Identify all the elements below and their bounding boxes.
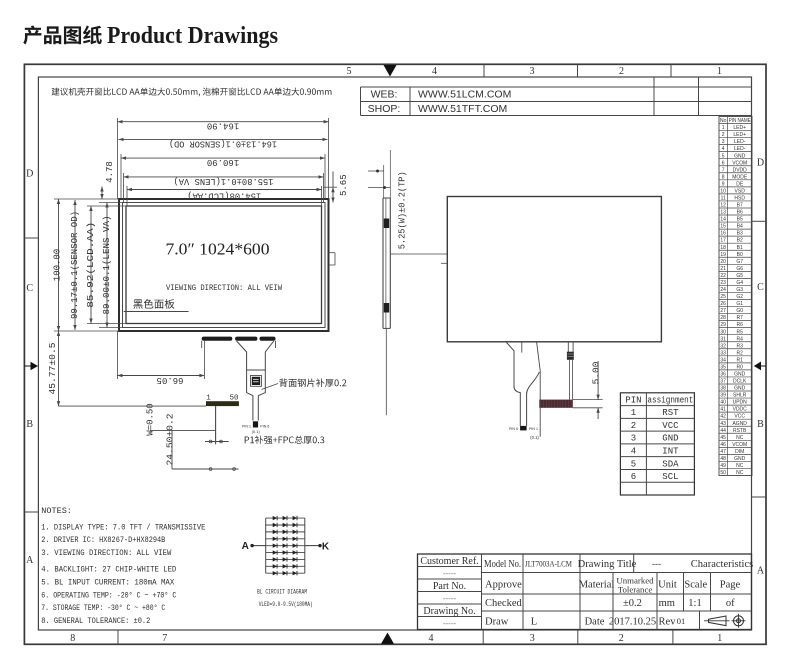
svg-text:PIN 1: PIN 1	[242, 424, 251, 428]
svg-text:66.05: 66.05	[156, 375, 183, 385]
svg-text:Customer Ref.: Customer Ref.	[420, 556, 478, 567]
svg-text:1. DISPLAY TYPE: 7.0 TFT / TR: 1. DISPLAY TYPE: 7.0 TFT / TRANSMISSIVE	[41, 522, 205, 532]
svg-text:VIEWING DIRECTION: ALL VEIW: VIEWING DIRECTION: ALL VEIW	[166, 284, 282, 293]
svg-text:Draw: Draw	[485, 616, 509, 627]
svg-text:VLED=9.0-9.5V(180MA): VLED=9.0-9.5V(180MA)	[259, 601, 313, 608]
svg-text:Tolerance: Tolerance	[618, 584, 653, 594]
svg-text:Characteristics: Characteristics	[691, 559, 753, 570]
svg-text:1: 1	[206, 395, 211, 403]
svg-text:2017.10.25: 2017.10.25	[609, 616, 656, 627]
svg-text:NC: NC	[736, 470, 744, 476]
svg-text:100.00: 100.00	[53, 249, 63, 281]
svg-text:RST: RST	[662, 408, 679, 418]
svg-text:SCL: SCL	[662, 472, 678, 482]
svg-text:Page: Page	[720, 579, 741, 590]
svg-text:7: 7	[162, 633, 167, 644]
svg-text:1:1: 1:1	[688, 598, 701, 609]
svg-text:No: No	[720, 118, 727, 124]
svg-text:PIN NAME: PIN NAME	[729, 118, 751, 124]
svg-text:mm: mm	[659, 598, 675, 609]
svg-text:7. STORAGE TEMP: -30° C ~ +80°: 7. STORAGE TEMP: -30° C ~ +80° C	[41, 603, 165, 613]
svg-text:154.08(LCD.AA): 154.08(LCD.AA)	[187, 191, 261, 201]
svg-text:1: 1	[717, 66, 722, 77]
svg-text:164.90: 164.90	[207, 120, 239, 130]
svg-text:3: 3	[530, 66, 535, 77]
svg-text:50: 50	[229, 395, 239, 403]
svg-text:A: A	[757, 566, 765, 577]
svg-text:5. BL INPUT CURRENT: 180mA: 5. BL INPUT CURRENT: 180mA MAX	[41, 577, 174, 587]
svg-text:PIN 1: PIN 1	[529, 427, 538, 431]
svg-text:2: 2	[631, 421, 636, 431]
svg-text:Product Drawings: Product Drawings	[107, 22, 278, 49]
svg-text:of: of	[726, 598, 735, 609]
svg-text:PIN 6: PIN 6	[509, 427, 518, 431]
svg-text:3: 3	[631, 434, 636, 444]
svg-text:Approve: Approve	[485, 579, 522, 590]
svg-text:5.65: 5.65	[339, 174, 349, 196]
svg-text:W=0.50: W=0.50	[146, 403, 156, 435]
svg-text:K: K	[322, 542, 330, 553]
svg-text:45.77±0.5: 45.77±0.5	[48, 343, 58, 395]
svg-text:2: 2	[619, 66, 624, 77]
svg-text:BL CIRCUIT DIAGRAM: BL CIRCUIT DIAGRAM	[257, 588, 307, 595]
svg-text:8: 8	[70, 633, 75, 644]
svg-text:(0.1): (0.1)	[252, 429, 261, 434]
svg-text:NOTES:: NOTES:	[41, 506, 72, 516]
svg-text:A: A	[242, 541, 249, 552]
svg-text:1: 1	[631, 408, 636, 418]
svg-text:99.17±0.1(SENSOR OD): 99.17±0.1(SENSOR OD)	[70, 211, 80, 319]
svg-text:L: L	[531, 616, 537, 627]
svg-text:INT: INT	[662, 446, 679, 456]
svg-text:5: 5	[347, 66, 352, 77]
svg-text:Checked: Checked	[485, 598, 522, 609]
svg-text:Part No.: Part No.	[433, 581, 466, 592]
svg-text:B: B	[757, 419, 764, 430]
svg-text:Unit: Unit	[658, 579, 677, 590]
svg-text:164.13±0.1(SENSOR OD): 164.13±0.1(SENSOR OD)	[169, 138, 277, 148]
svg-text:4: 4	[429, 633, 434, 644]
svg-text:Material: Material	[579, 579, 615, 590]
svg-text:4. BACKLIGHT: 27 CHIP-WHITE: 4. BACKLIGHT: 27 CHIP-WHITE LED	[41, 565, 176, 575]
svg-text:Drawing No.: Drawing No.	[423, 606, 475, 617]
svg-text:---: ---	[652, 558, 661, 568]
svg-text:155.80±0.1(LENS VA): 155.80±0.1(LENS VA)	[174, 176, 274, 186]
svg-text:PIN: PIN	[625, 395, 641, 405]
svg-text:Model No.: Model No.	[484, 559, 521, 570]
svg-text:D: D	[757, 158, 764, 169]
svg-text:5: 5	[631, 459, 636, 469]
svg-text:3. VIEWING DIRECTION: ALL VI: 3. VIEWING DIRECTION: ALL VIEW	[41, 548, 172, 558]
svg-text:D: D	[26, 169, 33, 180]
svg-text:7.0″ 1024*600: 7.0″ 1024*600	[166, 240, 270, 259]
svg-text:SDA: SDA	[662, 459, 679, 469]
svg-text:85.92(LCD.AA): 85.92(LCD.AA)	[86, 222, 96, 308]
svg-text:-----: -----	[443, 569, 457, 578]
svg-text:50: 50	[720, 470, 726, 476]
svg-text:assignment: assignment	[647, 395, 693, 405]
svg-text:JLT7003A-LCM: JLT7003A-LCM	[525, 559, 572, 568]
svg-text:5.25(W)±0.2(TP): 5.25(W)±0.2(TP)	[398, 171, 408, 249]
svg-text:GND: GND	[662, 434, 678, 444]
svg-text:5.00: 5.00	[591, 361, 602, 384]
svg-text:VCC: VCC	[662, 421, 679, 431]
svg-text:4: 4	[631, 446, 636, 456]
svg-text:160.90: 160.90	[207, 157, 239, 167]
svg-text:WWW.51LCM.COM: WWW.51LCM.COM	[418, 89, 511, 101]
svg-text:01: 01	[677, 616, 686, 626]
svg-text:C: C	[757, 282, 764, 293]
svg-text:6. OPERATING TEMP: -20° C ~ +7: 6. OPERATING TEMP: -20° C ~ +70° C	[41, 590, 176, 600]
svg-text:SHOP:: SHOP:	[368, 103, 401, 115]
svg-text:Drawing Title: Drawing Title	[578, 559, 637, 570]
svg-text:3: 3	[530, 633, 535, 644]
svg-text:8. GENERAL TOLERANCE: ±0.2: 8. GENERAL TOLERANCE: ±0.2	[41, 616, 150, 626]
svg-text:4.78: 4.78	[105, 161, 115, 183]
svg-text:(0.1): (0.1)	[530, 435, 539, 440]
svg-text:2: 2	[619, 633, 624, 644]
svg-text:WWW.51TFT.COM: WWW.51TFT.COM	[418, 103, 507, 115]
svg-text:89.00±0.1(LENS VA): 89.00±0.1(LENS VA)	[102, 216, 112, 315]
svg-text:-----: -----	[443, 619, 457, 628]
svg-text:B: B	[26, 419, 33, 430]
svg-text:Scale: Scale	[684, 579, 707, 590]
svg-text:1: 1	[717, 633, 722, 644]
svg-text:-----: -----	[443, 594, 457, 603]
svg-text:6: 6	[631, 472, 636, 482]
svg-text:PIN 6: PIN 6	[260, 424, 269, 428]
svg-text:Date: Date	[585, 616, 605, 627]
svg-text:2. DRIVER IC: HX8267-D+HX8294: 2. DRIVER IC: HX8267-D+HX8294B	[41, 535, 165, 545]
svg-text:4: 4	[432, 66, 437, 77]
svg-text:C: C	[26, 283, 33, 294]
svg-text:±0.2: ±0.2	[623, 598, 642, 609]
svg-text:24.50±0.2: 24.50±0.2	[166, 414, 176, 466]
svg-text:WEB:: WEB:	[371, 89, 398, 101]
svg-text:A: A	[26, 555, 34, 566]
svg-text:Rev: Rev	[659, 616, 677, 627]
